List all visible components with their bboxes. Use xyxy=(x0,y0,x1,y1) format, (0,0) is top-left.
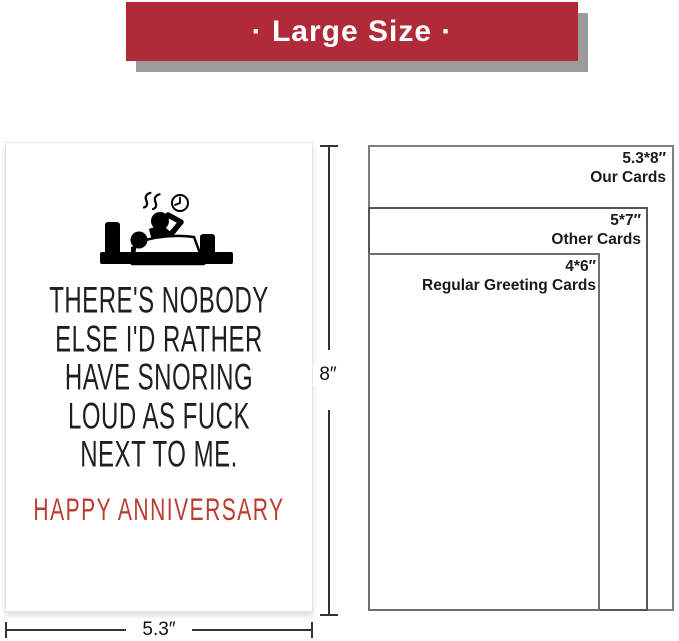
card-greeting: HAPPY ANNIVERSARY xyxy=(6,493,312,529)
product-size-infographic: · Large Size · xyxy=(0,0,679,641)
width-dim-label: 5.3″ xyxy=(133,619,185,641)
size-label-other-cards: 5*7″ Other Cards xyxy=(551,211,641,249)
height-dim-bottom-cap xyxy=(320,614,338,616)
size-value: 4*6″ xyxy=(422,257,596,276)
width-dim-right-cap xyxy=(311,622,313,638)
height-dim-label: 8″ xyxy=(313,364,343,386)
width-dim-line-left xyxy=(7,629,126,631)
size-rect-regular-cards xyxy=(368,253,600,611)
height-dim-line-upper xyxy=(328,147,330,350)
size-value: 5*7″ xyxy=(551,211,641,230)
quote-line: NEXT TO ME. xyxy=(6,426,312,486)
size-name: Other Cards xyxy=(551,230,641,249)
size-name: Our Cards xyxy=(590,168,666,187)
size-name: Regular Greeting Cards xyxy=(422,276,596,295)
snore-squiggles-icon xyxy=(142,190,161,212)
couple-in-bed-snoring-clock-icon xyxy=(96,184,236,272)
size-label-our-cards: 5.3*8″ Our Cards xyxy=(590,149,666,187)
greeting-card-preview: THERE'S NOBODY ELSE I'D RATHER HAVE SNOR… xyxy=(5,142,313,612)
width-dim-line-right xyxy=(192,629,311,631)
size-label-regular-cards: 4*6″ Regular Greeting Cards xyxy=(422,257,596,295)
height-dim-line-lower xyxy=(328,410,330,614)
size-value: 5.3*8″ xyxy=(590,149,666,168)
clock-icon xyxy=(172,195,188,211)
banner-label: · Large Size · xyxy=(252,15,453,49)
card-quote: THERE'S NOBODY ELSE I'D RATHER HAVE SNOR… xyxy=(6,283,312,476)
large-size-banner: · Large Size · xyxy=(126,2,578,61)
